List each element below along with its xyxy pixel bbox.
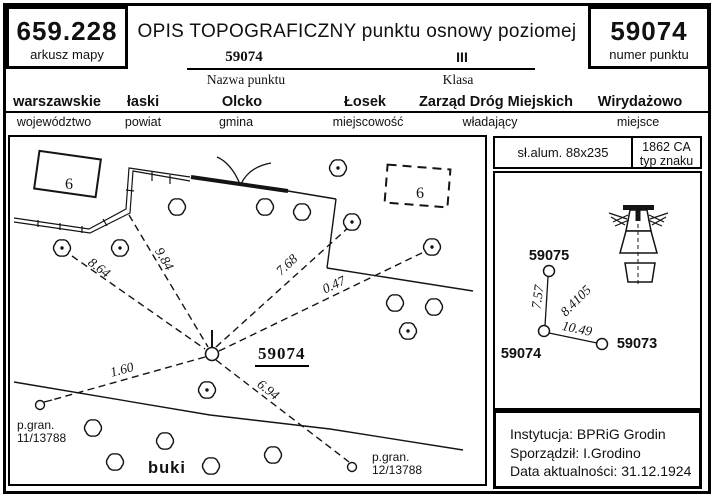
marker-type-box: 1862 CA typ znaku (631, 136, 702, 169)
monument-ground-hatch (609, 213, 627, 219)
class-value: III (456, 49, 468, 65)
network-point-symbol (539, 326, 550, 337)
boundary-marker-label-11: p.gran. 11/13788 (17, 419, 66, 445)
institution-line: Instytucja: BPRiG Grodin (510, 425, 699, 444)
network-point-symbol (544, 266, 555, 277)
network-point-label: 59075 (529, 248, 569, 264)
boundary-marker-label-12: p.gran. 12/13788 (372, 451, 422, 477)
tree-center-dot (205, 388, 208, 391)
tree-icon (85, 420, 102, 436)
admin-label-powiat: powiat (125, 115, 161, 129)
tree-icon (157, 433, 174, 449)
tree-center-dot (60, 246, 63, 249)
tree-icon (387, 295, 404, 311)
tree-center-dot (336, 166, 339, 169)
tree-icon (107, 454, 124, 470)
building-number-label: 6 (65, 176, 73, 193)
network-point-symbol (597, 339, 608, 350)
point-number-box: 59074 numer punktu (588, 6, 710, 69)
marker-material: sł.alum. 88x235 (517, 145, 608, 160)
station-point-symbol (206, 348, 219, 361)
boundary-marker-symbol (348, 463, 357, 472)
admin-label-wojewodztwo: województwo (17, 115, 91, 129)
vegetation-label: buki (148, 459, 186, 478)
boundary-marker-symbol (36, 401, 45, 410)
tree-center-dot (350, 220, 353, 223)
admin-value-gmina: Olcko (222, 94, 262, 110)
measurement-line (216, 360, 349, 462)
tree-icon (426, 299, 443, 315)
network-point-label: 59074 (501, 346, 541, 362)
tree-icon (257, 199, 274, 215)
metadata-box: Instytucja: BPRiG Grodin Sporządził: I.G… (493, 410, 702, 489)
admin-value-powiat: łaski (127, 94, 159, 110)
monument-block (625, 263, 655, 282)
network-point-label: 59073 (617, 336, 657, 352)
admin-value-miejscowosc: Łosek (344, 94, 386, 110)
boundary-marker-stem (44, 400, 52, 402)
admin-label-miejscowosc: miejscowość (333, 115, 404, 129)
station-point-label: 59074 (255, 344, 309, 367)
point-name-value: 59074 (225, 49, 263, 66)
marker-type-label: typ znaku (633, 154, 700, 168)
building-number-label: 6 (416, 185, 424, 202)
actuality-date-line: Data aktualności: 31.12.1924 (510, 462, 699, 481)
boundary-marker-number: 12/13788 (372, 464, 422, 477)
admin-value-wladajacy: Zarząd Dróg Miejskich (419, 94, 573, 110)
point-number-label: numer punktu (591, 47, 707, 62)
tree-icon (169, 199, 186, 215)
topographic-description-sheet: 66 659.228 arkusz mapy 59074 numer punkt… (0, 0, 715, 498)
marker-type-value: 1862 CA (633, 140, 700, 154)
marker-material-box: sł.alum. 88x235 (493, 136, 633, 169)
point-name-label: Nazwa punktu (207, 72, 285, 88)
admin-value-miejsce: Wirydażowo (598, 94, 682, 110)
admin-label-miejsce: miejsce (617, 115, 659, 129)
network-distance-label: 7.57 (528, 284, 547, 310)
map-sheet-box: 659.228 arkusz mapy (6, 6, 128, 69)
tree-center-dot (430, 245, 433, 248)
monument-ground-hatch (650, 213, 668, 219)
boundary-line (327, 199, 336, 268)
tree-icon (203, 458, 220, 474)
prepared-by-line: Sporządził: I.Grodino (510, 444, 699, 463)
point-number-value: 59074 (591, 16, 707, 47)
admin-label-gmina: gmina (219, 115, 253, 129)
tree-icon (294, 204, 311, 220)
tuft-icon (241, 163, 271, 184)
map-sheet-number: 659.228 (9, 16, 125, 47)
tree-center-dot (406, 329, 409, 332)
tree-icon (265, 447, 282, 463)
boundary-line (288, 191, 336, 199)
tree-center-dot (118, 246, 121, 249)
admin-label-wladajacy: władający (463, 115, 518, 129)
page-title: OPIS TOPOGRAFICZNY punktu osnowy poziome… (138, 21, 577, 43)
map-sheet-label: arkusz mapy (9, 47, 125, 62)
class-label: Klasa (443, 72, 474, 88)
measurement-line (129, 215, 208, 347)
boundary-marker-number: 11/13788 (17, 432, 66, 445)
admin-value-wojewodztwo: warszawskie (13, 94, 101, 110)
